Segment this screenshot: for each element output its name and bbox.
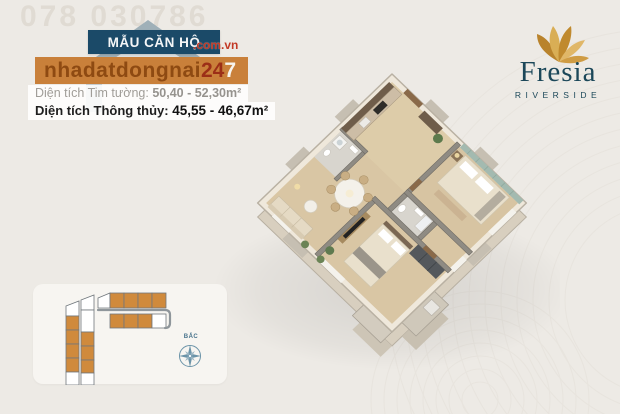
spec-gross-label: Diện tích Tim tường: <box>35 86 149 100</box>
spec-gross-value: 50,40 - 52,30m² <box>152 86 241 100</box>
spec-net-area: Diện tích Thông thủy: 45,55 - 46,67m² <box>28 102 275 120</box>
brand-watermark-number-suffix: 7 <box>224 59 236 83</box>
spec-net-value: 45,55 - 46,67m² <box>172 103 268 118</box>
project-name: Fresia <box>495 58 620 87</box>
domain-watermark: .com.vn <box>193 38 238 52</box>
project-tagline: RIVERSIDE <box>495 90 620 100</box>
project-logo: Fresia RIVERSIDE <box>495 16 620 100</box>
page-title: MẪU CĂN HỘ <box>108 35 201 50</box>
compass-icon <box>175 341 205 371</box>
spec-gross-area: Diện tích Tim tường: 50,40 - 52,30m² <box>28 85 248 102</box>
brand-watermark-text: nhadatdongnai <box>44 59 201 83</box>
spec-net-label: Diện tích Thông thủy: <box>35 103 169 118</box>
brand-watermark-number: 24 <box>201 59 224 83</box>
keyplan-diagram <box>45 290 195 385</box>
compass-north-label: BẮC <box>174 334 208 340</box>
brand-watermark-band: nhadatdongnai 24 7 <box>35 57 248 84</box>
flyer-canvas: 078 030786 MẪU CĂN HỘ .com.vn nhadatdong… <box>0 0 620 414</box>
